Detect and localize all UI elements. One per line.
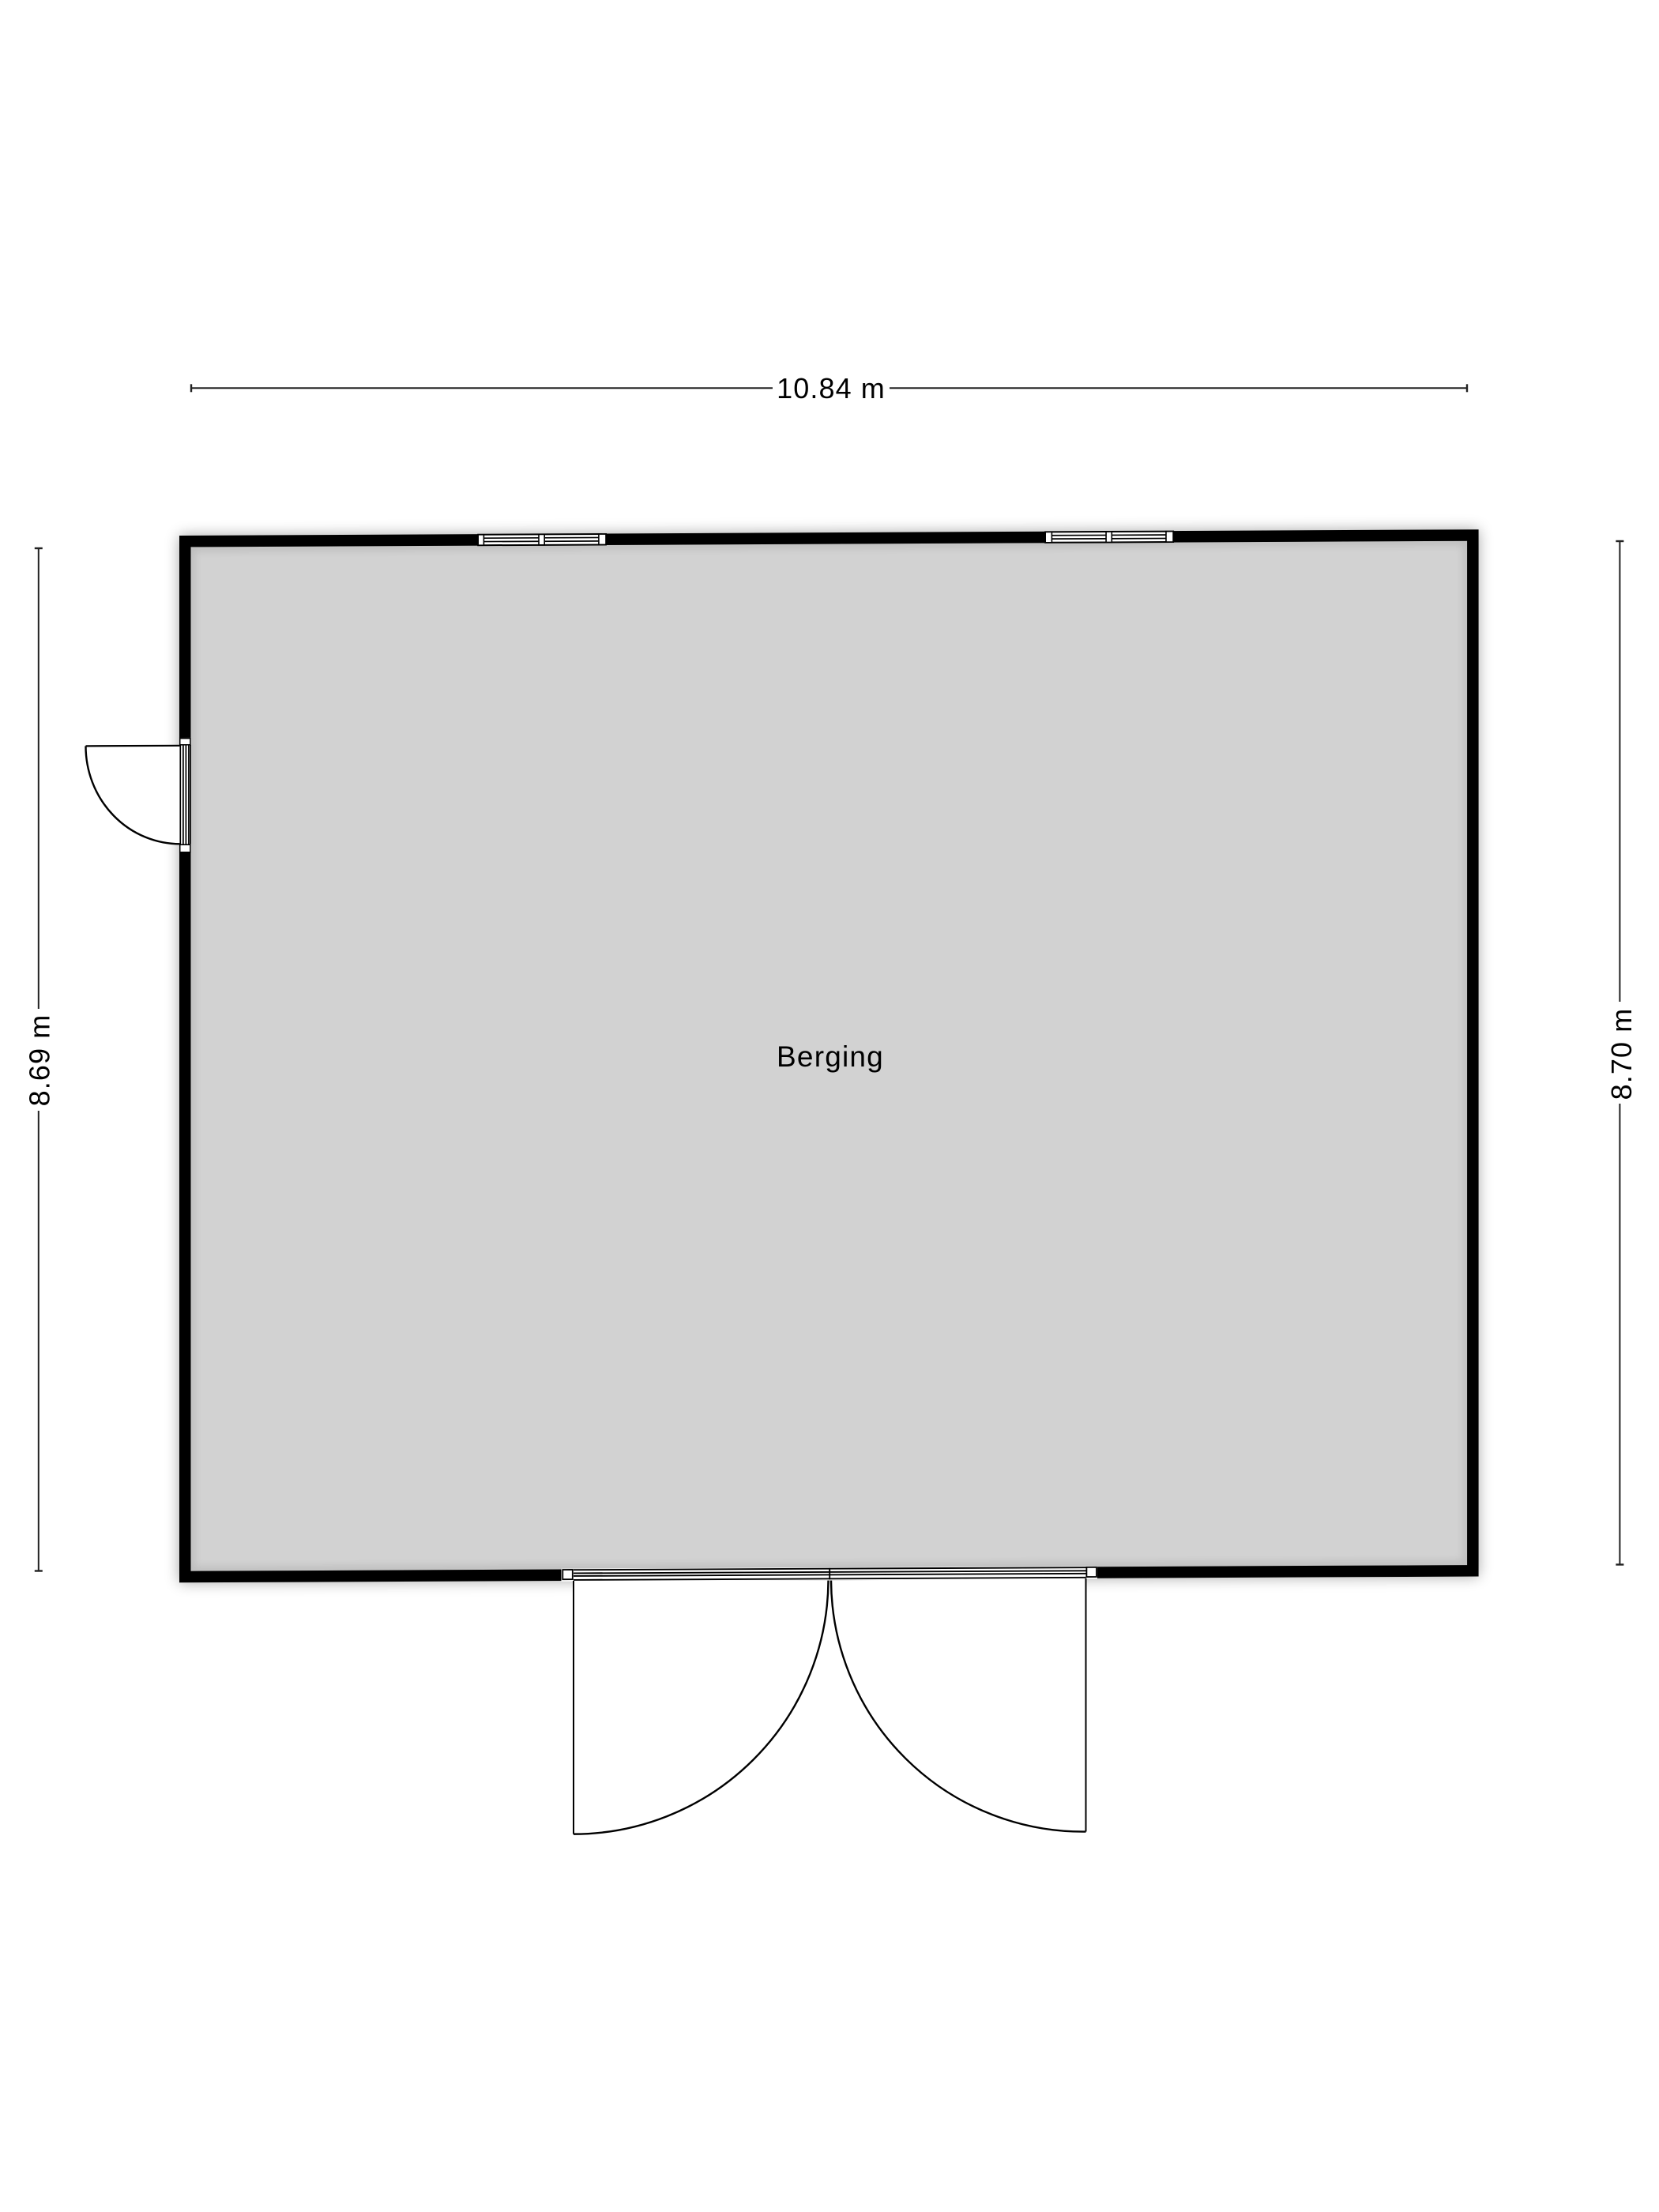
svg-text:Berging: Berging — [777, 1040, 884, 1073]
svg-text:8.70 m: 8.70 m — [1605, 1008, 1638, 1100]
svg-text:8.69 m: 8.69 m — [24, 1014, 56, 1107]
svg-text:10.84 m: 10.84 m — [777, 372, 886, 404]
